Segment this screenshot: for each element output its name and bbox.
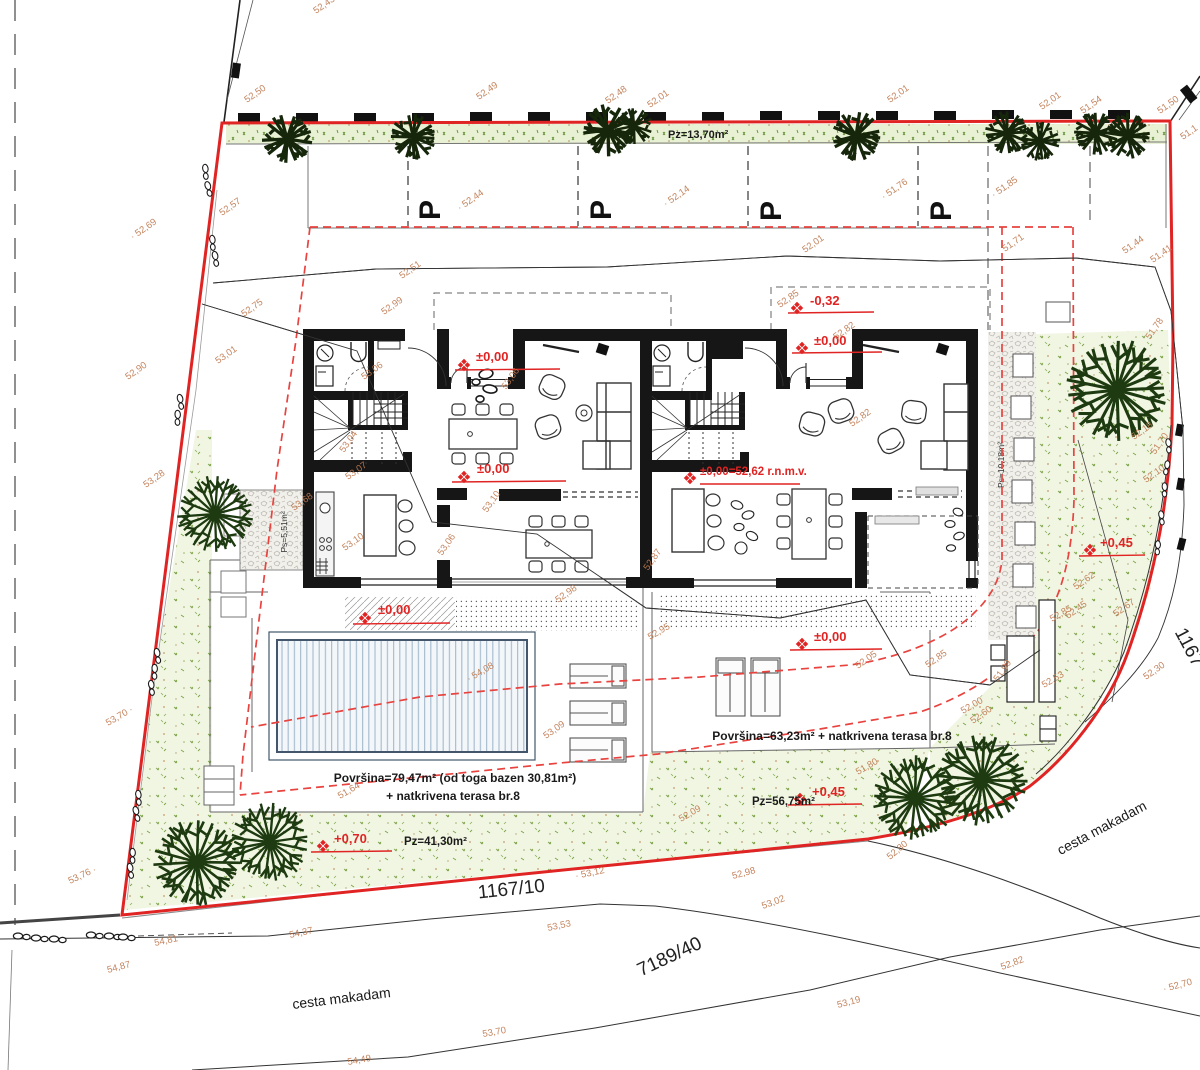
- svg-text:Površina=63,23m² + natkrivena: Površina=63,23m² + natkrivena terasa br.…: [712, 729, 952, 743]
- svg-text:P: P: [755, 201, 788, 221]
- svg-text:Pz=13,70m²: Pz=13,70m²: [668, 129, 729, 141]
- svg-text:+0,45: +0,45: [812, 784, 845, 799]
- svg-text:-0,32: -0,32: [810, 293, 840, 308]
- svg-text:±0,00: ±0,00: [476, 349, 508, 364]
- svg-text:Ps=10,18m²: Ps=10,18m²: [996, 442, 1006, 488]
- svg-text:+0,70: +0,70: [334, 831, 367, 846]
- svg-text:±0,00: ±0,00: [378, 602, 410, 617]
- svg-text:Ps=5,51m²: Ps=5,51m²: [279, 511, 289, 553]
- svg-text:±0,00: ±0,00: [477, 461, 509, 476]
- svg-text:Pz=41,30m²: Pz=41,30m²: [404, 836, 467, 848]
- svg-text:+ natkrivena terasa br.8: + natkrivena terasa br.8: [386, 789, 520, 803]
- svg-text:P: P: [585, 200, 618, 220]
- svg-text:Površina=79,47m² (od toga baze: Površina=79,47m² (od toga bazen 30,81m²): [334, 771, 576, 785]
- svg-text:P: P: [925, 201, 958, 221]
- svg-text:±0,00=52,62 r.n.m.v.: ±0,00=52,62 r.n.m.v.: [700, 466, 807, 478]
- svg-text:P: P: [414, 200, 447, 220]
- svg-text:Pz=56,75m²: Pz=56,75m²: [752, 796, 815, 808]
- svg-text:+0,45: +0,45: [1100, 535, 1133, 550]
- svg-text:±0,00: ±0,00: [814, 629, 846, 644]
